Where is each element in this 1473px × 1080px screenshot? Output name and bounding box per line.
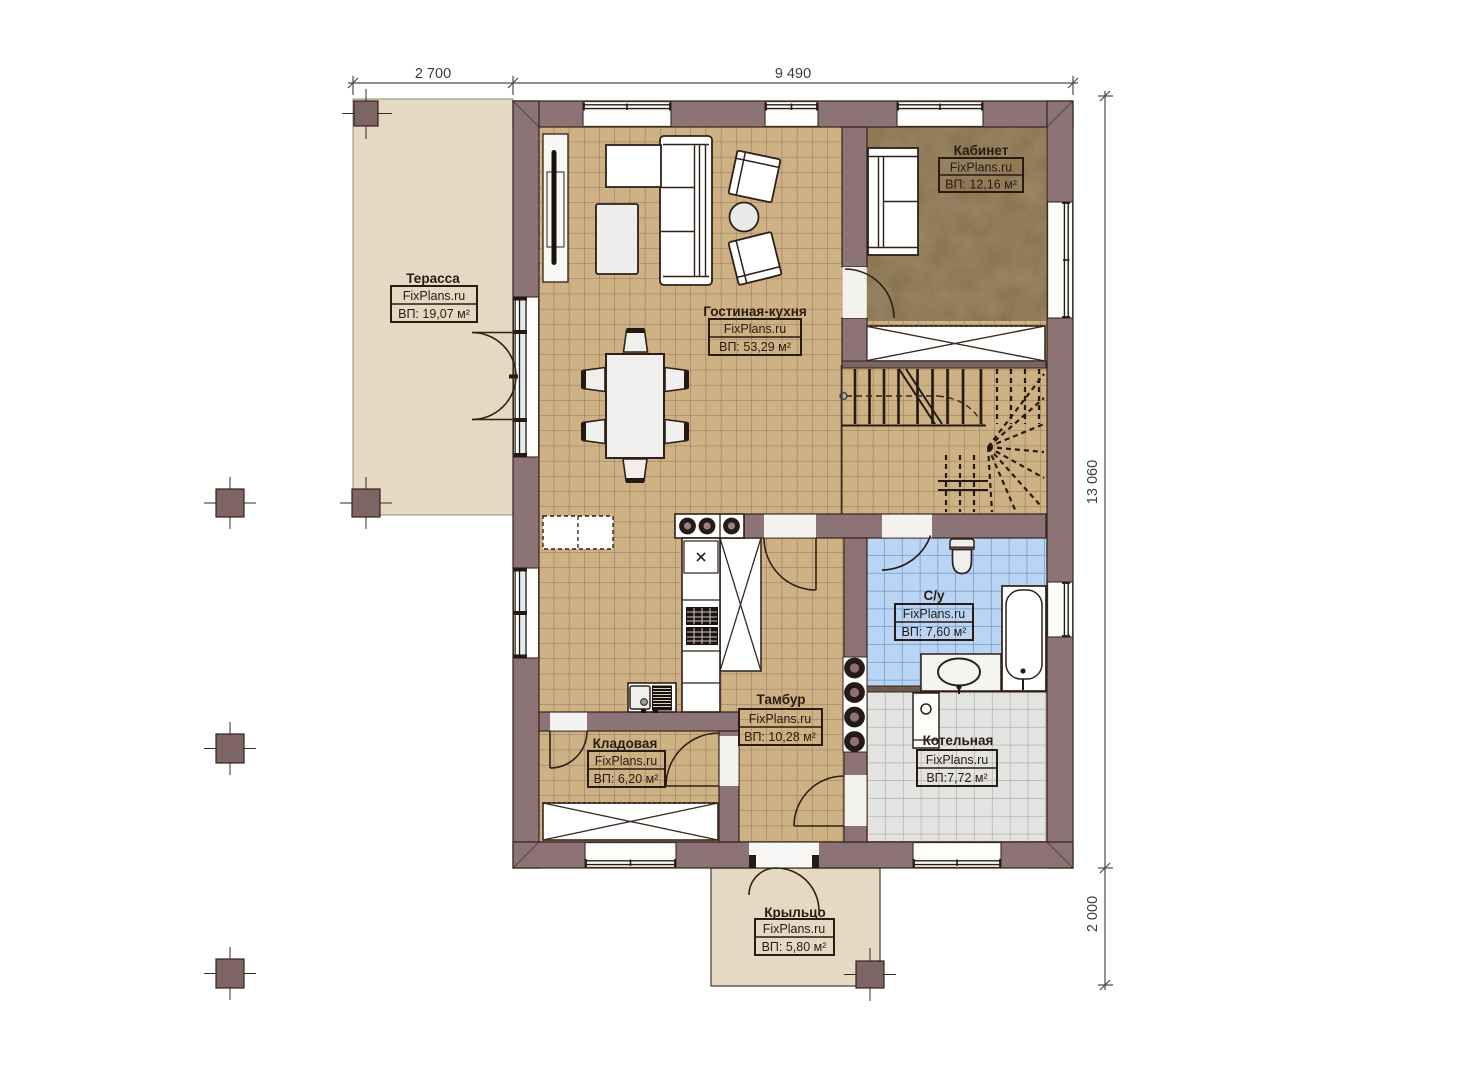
- svg-text:С/у: С/у: [923, 588, 945, 603]
- svg-text:FixPlans.ru: FixPlans.ru: [903, 607, 966, 621]
- svg-text:Тамбур: Тамбур: [757, 692, 806, 707]
- svg-text:ВП: 5,80 м²: ВП: 5,80 м²: [762, 940, 827, 954]
- svg-text:2 000: 2 000: [1085, 896, 1101, 932]
- svg-text:FixPlans.ru: FixPlans.ru: [595, 754, 658, 768]
- svg-text:FixPlans.ru: FixPlans.ru: [763, 922, 826, 936]
- svg-text:ВП: 6,20 м²: ВП: 6,20 м²: [594, 772, 659, 786]
- svg-text:2 700: 2 700: [415, 66, 451, 82]
- svg-text:Котельная: Котельная: [923, 733, 994, 748]
- svg-text:Терасса: Терасса: [406, 271, 460, 286]
- svg-text:ВП:7,72 м²: ВП:7,72 м²: [926, 771, 987, 785]
- svg-text:Кладовая: Кладовая: [593, 736, 658, 751]
- svg-text:FixPlans.ru: FixPlans.ru: [926, 753, 989, 767]
- svg-text:ВП: 19,07 м²: ВП: 19,07 м²: [398, 307, 470, 321]
- svg-text:Крыльцо: Крыльцо: [764, 905, 825, 920]
- svg-text:13 060: 13 060: [1085, 460, 1101, 504]
- svg-text:ВП: 10,28 м²: ВП: 10,28 м²: [744, 730, 816, 744]
- svg-text:Гостиная-кухня: Гостиная-кухня: [703, 304, 806, 319]
- svg-text:Кабинет: Кабинет: [954, 143, 1009, 158]
- svg-text:ВП: 12,16 м²: ВП: 12,16 м²: [945, 178, 1017, 192]
- svg-text:ВП: 7,60 м²: ВП: 7,60 м²: [902, 625, 967, 639]
- svg-text:FixPlans.ru: FixPlans.ru: [724, 322, 787, 336]
- svg-text:9 490: 9 490: [775, 66, 811, 82]
- svg-text:ВП: 53,29 м²: ВП: 53,29 м²: [719, 340, 791, 354]
- svg-text:FixPlans.ru: FixPlans.ru: [749, 712, 812, 726]
- svg-text:FixPlans.ru: FixPlans.ru: [950, 161, 1013, 175]
- svg-text:FixPlans.ru: FixPlans.ru: [403, 289, 466, 303]
